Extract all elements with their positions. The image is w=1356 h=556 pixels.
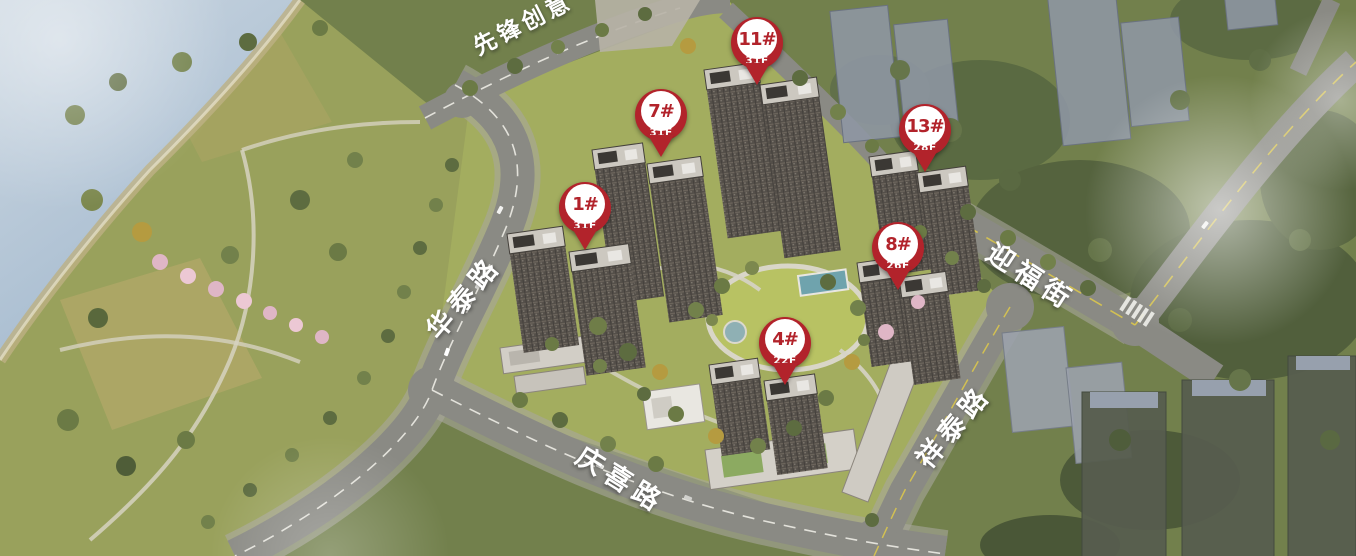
marker-head: 1# 31F bbox=[559, 182, 611, 234]
marker-tail bbox=[572, 228, 598, 250]
marker-head: 13# 28F bbox=[899, 104, 951, 156]
building-number: 7# bbox=[641, 91, 681, 131]
building-number: 4# bbox=[765, 319, 805, 359]
marker-tail bbox=[772, 363, 798, 385]
building-number: 8# bbox=[878, 224, 918, 264]
marker-tail bbox=[885, 268, 911, 290]
marker-tail bbox=[648, 135, 674, 157]
building-marker-13[interactable]: 13# 28F bbox=[895, 104, 955, 172]
marker-head: 4# 22F bbox=[759, 317, 811, 369]
building-number: 13# bbox=[905, 106, 945, 146]
aerial-render bbox=[0, 0, 1356, 556]
building-marker-4[interactable]: 4# 22F bbox=[755, 317, 815, 385]
marker-head: 11# 31F bbox=[731, 17, 783, 69]
building-marker-11[interactable]: 11# 31F bbox=[727, 17, 787, 85]
marker-tail bbox=[912, 150, 938, 172]
marker-head: 7# 31F bbox=[635, 89, 687, 141]
building-marker-8[interactable]: 8# 26F bbox=[868, 222, 928, 290]
building-number: 11# bbox=[737, 19, 777, 59]
aerial-masterplan: 先锋创意 华泰路 迎福街 祥泰路 庆喜路 11# 31F 7# 31F 13# … bbox=[0, 0, 1356, 556]
marker-tail bbox=[744, 63, 770, 85]
building-marker-1[interactable]: 1# 31F bbox=[555, 182, 615, 250]
marker-head: 8# 26F bbox=[872, 222, 924, 274]
building-number: 1# bbox=[565, 184, 605, 224]
building-marker-7[interactable]: 7# 31F bbox=[631, 89, 691, 157]
